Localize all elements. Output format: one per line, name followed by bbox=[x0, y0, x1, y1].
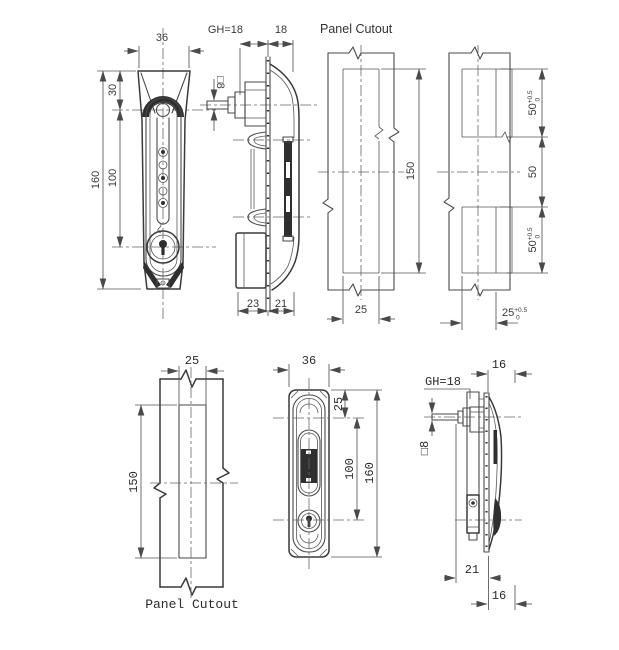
dim-label-bottom-depth: 16 bbox=[492, 589, 506, 603]
panel-cutout-title: Panel Cutout bbox=[145, 597, 239, 612]
dim-label-rear-depth: 21 bbox=[275, 298, 287, 310]
dim-label-width: 36 bbox=[156, 32, 168, 44]
panel-cutout-title: Panel Cutout bbox=[320, 22, 393, 36]
engineering-drawing-sheet: 36 160 30 100 GH=18 18 □8 bbox=[0, 0, 619, 650]
dim-label-grip-height: GH=18 bbox=[425, 375, 461, 389]
dim-label-behind-panel: 18 bbox=[275, 24, 287, 36]
drawing-canvas: 36 160 30 100 GH=18 18 □8 bbox=[0, 0, 619, 650]
dim-label-top-offset: 30 bbox=[107, 84, 119, 96]
dim-label-width: 36 bbox=[302, 354, 316, 368]
dim-label-top-depth: 16 bbox=[492, 358, 506, 372]
dim-label-cutout-height: 150 bbox=[405, 162, 417, 180]
dim-label-height: 160 bbox=[363, 462, 377, 484]
dim-label-spacing: 100 bbox=[107, 169, 119, 187]
dim-label-grip-height: GH=18 bbox=[208, 24, 243, 36]
dim-label-square-spindle: □8 bbox=[214, 76, 226, 89]
dim-label-top-offset: 25 bbox=[332, 397, 346, 411]
dim-label-middle-gap: 50 bbox=[527, 166, 539, 178]
dim-label-cutout-height: 150 bbox=[127, 471, 141, 493]
dim-label-square-spindle: □8 bbox=[418, 441, 432, 455]
dim-label-height: 160 bbox=[90, 171, 102, 189]
dim-label-front-depth: 23 bbox=[247, 298, 259, 310]
dim-label-cutout-width: 25 bbox=[355, 304, 367, 316]
dim-label-cutout-width: 25 bbox=[185, 354, 199, 368]
dim-label-spacing: 100 bbox=[343, 458, 357, 480]
dim-label-front-depth: 21 bbox=[465, 563, 479, 577]
